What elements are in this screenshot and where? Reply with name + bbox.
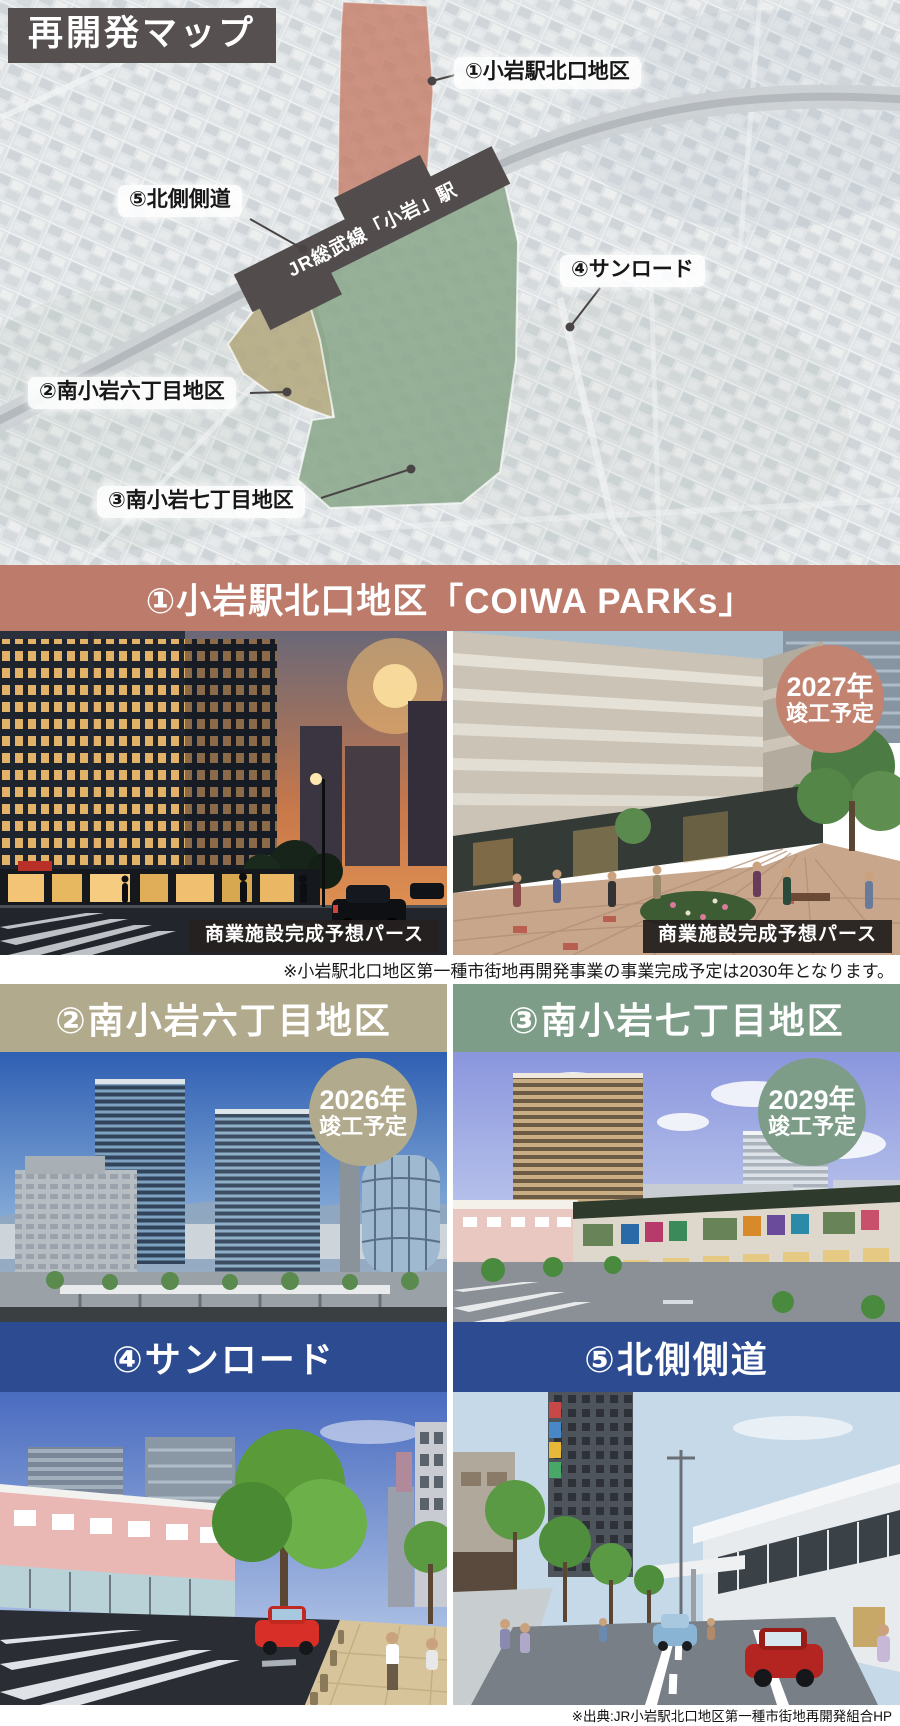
render-sunroad-street-image	[0, 1392, 447, 1705]
completion-badge-2027: 2027年 竣工予定	[776, 645, 884, 753]
map-label-area2: ②南小岩六丁目地区	[28, 377, 236, 409]
map-graphic: JR総武線「小岩」駅	[0, 0, 900, 565]
completion-badge-2026: 2026年 竣工予定	[309, 1058, 417, 1166]
map-label-area5: ⑤北側側道	[118, 185, 242, 217]
page-title: 再開発マップ	[8, 8, 276, 63]
page: JR総武線「小岩」駅 再開発マップ ①小岩駅北口地区 ⑤北側側道 ④サンロード …	[0, 0, 900, 1726]
section2-header: ②南小岩六丁目地区	[0, 984, 447, 1052]
render-towers-6chome-image: 2026年 竣工予定	[0, 1052, 447, 1322]
completion-note: ※小岩駅北口地区第一種市街地再開発事業の事業完成予定は2030年となります。	[0, 955, 900, 984]
section45-headers: ④サンロード ⑤北側側道	[0, 1322, 900, 1392]
section23-headers: ②南小岩六丁目地区 ③南小岩七丁目地区	[0, 984, 900, 1052]
image-caption-right: 商業施設完成予想パース	[643, 920, 892, 953]
section23-images: 2026年 竣工予定	[0, 1052, 900, 1322]
image-caption-left: 商業施設完成予想パース	[190, 920, 439, 953]
section1-title: ①小岩駅北口地区「COIWA PARKs」	[146, 573, 755, 624]
section5-header: ⑤北側側道	[453, 1322, 900, 1392]
section1-header: ①小岩駅北口地区「COIWA PARKs」	[0, 565, 900, 631]
section1-images: 商業施設完成予想パース	[0, 631, 900, 955]
render-towers-7chome-image: 2029年 竣工予定	[453, 1052, 900, 1322]
section4-header: ④サンロード	[0, 1322, 447, 1392]
render-night-street-image: 商業施設完成予想パース	[0, 631, 447, 955]
section3-header: ③南小岩七丁目地区	[453, 984, 900, 1052]
completion-badge-2029: 2029年 竣工予定	[758, 1058, 866, 1166]
source-note: ※出典:JR小岩駅北口地区第一種市街地再開発組合HP	[0, 1705, 900, 1726]
render-plaza-image: 2027年 竣工予定 商業施設完成予想パース	[453, 631, 900, 955]
map-label-area3: ③南小岩七丁目地区	[97, 486, 305, 518]
map-label-area1: ①小岩駅北口地区	[454, 57, 641, 89]
render-north-side-road-image	[453, 1392, 900, 1705]
map-label-area4: ④サンロード	[560, 255, 705, 287]
section45-images	[0, 1392, 900, 1705]
redevelopment-map: JR総武線「小岩」駅 再開発マップ ①小岩駅北口地区 ⑤北側側道 ④サンロード …	[0, 0, 900, 565]
